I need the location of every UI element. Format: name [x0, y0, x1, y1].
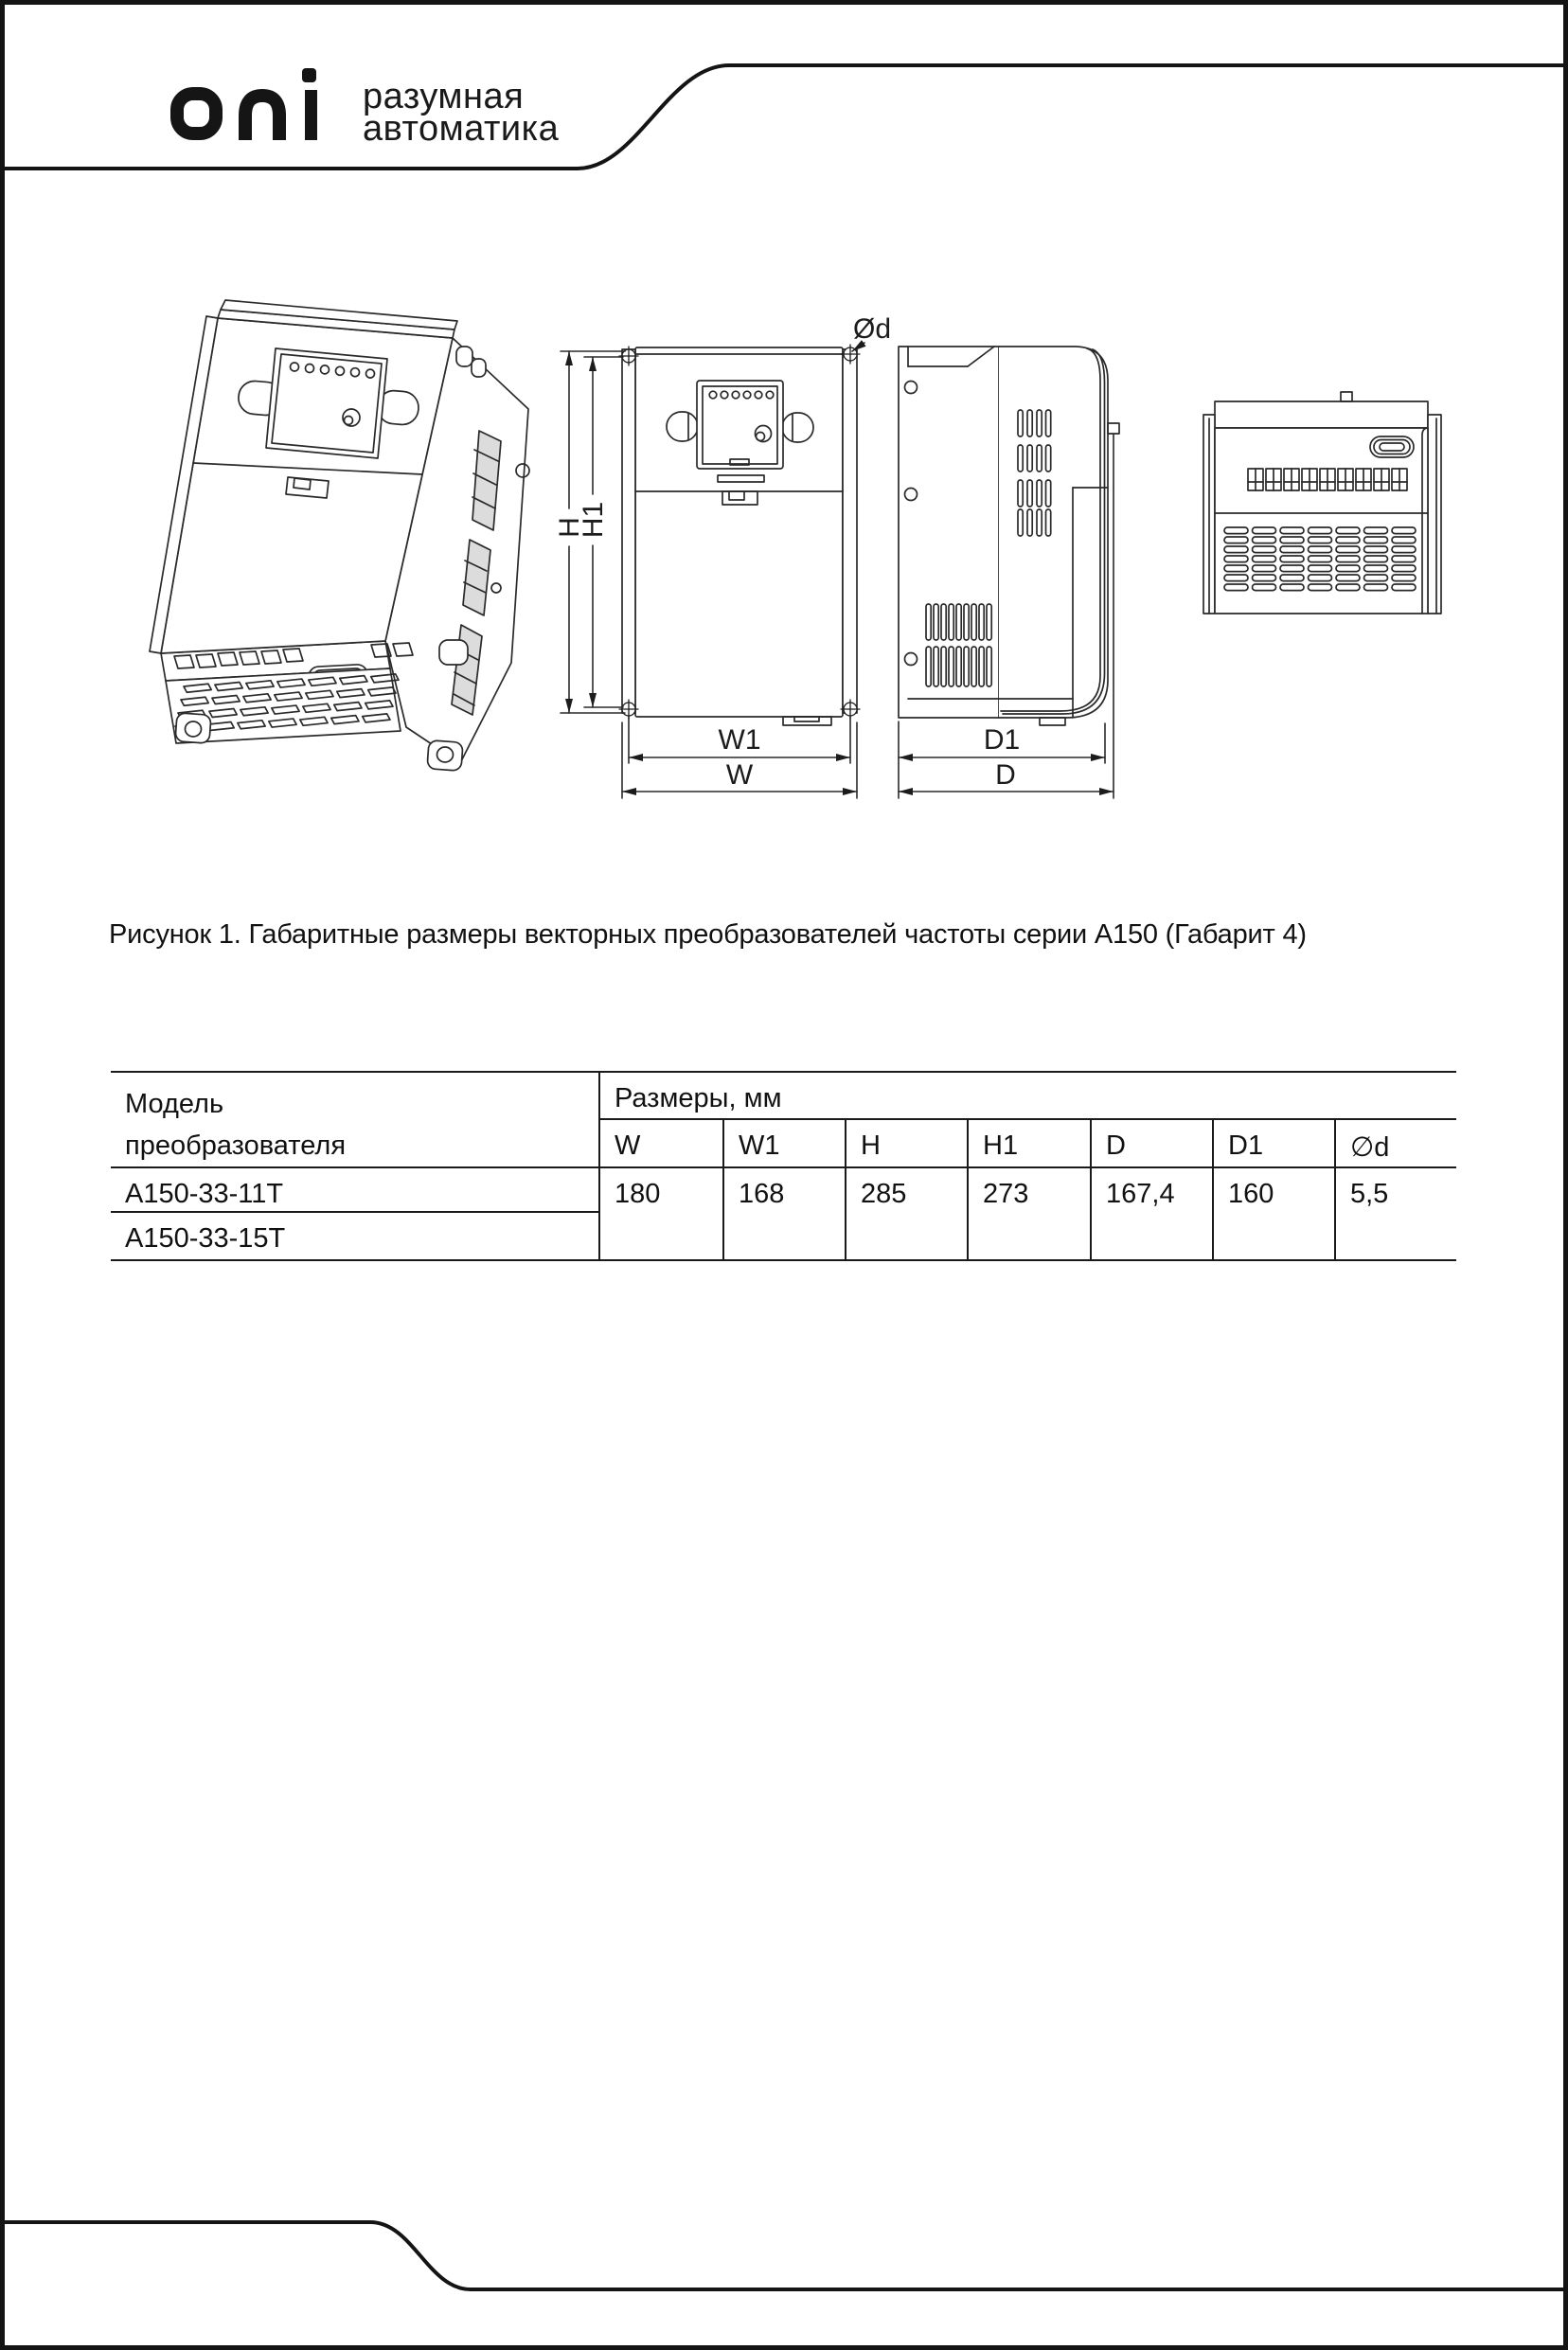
top-plate: [1215, 401, 1428, 428]
dim-label-D1: D1: [984, 724, 1020, 756]
mount-foot: [175, 713, 211, 743]
col-header-W1: W1: [723, 1119, 846, 1167]
footer-curve: [5, 2222, 1563, 2289]
figure-caption: Рисунок 1. Габаритные размеры векторных …: [109, 919, 1307, 951]
table-row: А150-33-11Т 180 168 285 273 167,4 160 5,…: [111, 1167, 1456, 1212]
mount-plate-right: [843, 349, 857, 713]
side-body: [999, 347, 1108, 718]
logo-letter-n: [245, 96, 279, 140]
top-tab: [1341, 392, 1352, 401]
keypad-panel: [266, 348, 387, 458]
col-header-H: H: [846, 1119, 968, 1167]
value-W1: 168: [723, 1167, 846, 1260]
side-view: [899, 347, 1119, 725]
dimensions-table: Модель преобразователя Размеры, мм W W1 …: [111, 1071, 1456, 1261]
front-view: [619, 345, 860, 725]
dims-header-cell: Размеры, мм: [599, 1072, 1456, 1119]
col-header-W: W: [599, 1119, 723, 1167]
model-name-cell: А150-33-15Т: [111, 1212, 599, 1260]
dim-label-H1: H1: [578, 502, 609, 538]
value-dia: 5,5: [1335, 1167, 1456, 1260]
value-W: 180: [599, 1167, 723, 1260]
value-H1: 273: [968, 1167, 1091, 1260]
value-H: 285: [846, 1167, 968, 1260]
value-D1: 160: [1213, 1167, 1335, 1260]
bottom-vent-grid: [1224, 527, 1416, 591]
datasheet-page: oni: [0, 0, 1568, 2350]
perspective-view: [150, 300, 529, 771]
side-strip-right: [1428, 415, 1441, 614]
model-header-line2: преобразователя: [125, 1125, 595, 1166]
brand-tagline-line1: разумная: [363, 80, 559, 113]
col-header-D1: D1: [1213, 1119, 1335, 1167]
value-D: 167,4: [1091, 1167, 1213, 1260]
keypad-tab: [1108, 423, 1119, 434]
dim-label-W1: W1: [719, 724, 761, 756]
mount-foot: [427, 740, 463, 771]
bottom-tab: [1040, 718, 1065, 725]
model-name-cell: А150-33-11Т: [111, 1167, 599, 1212]
col-header-D: D: [1091, 1119, 1213, 1167]
brand-tagline-line2: автоматика: [363, 113, 559, 145]
header-curve: [5, 65, 1563, 169]
dim-label-D: D: [995, 759, 1016, 791]
logo-letter-o: [177, 94, 216, 134]
col-header-dia: ∅d: [1335, 1119, 1456, 1167]
logo-letter-i-dot: [302, 68, 316, 82]
bottom-view: [1203, 392, 1441, 614]
model-header-line1: Модель: [125, 1083, 595, 1125]
model-header-cell: Модель преобразователя: [111, 1072, 599, 1167]
dim-label-dia: Ød: [853, 313, 891, 345]
brand-logo: oni: [177, 68, 316, 140]
col-header-H1: H1: [968, 1119, 1091, 1167]
dim-label-W: W: [726, 759, 754, 791]
mount-plate-left: [622, 349, 635, 713]
brand-tagline: разумная автоматика: [363, 80, 559, 145]
